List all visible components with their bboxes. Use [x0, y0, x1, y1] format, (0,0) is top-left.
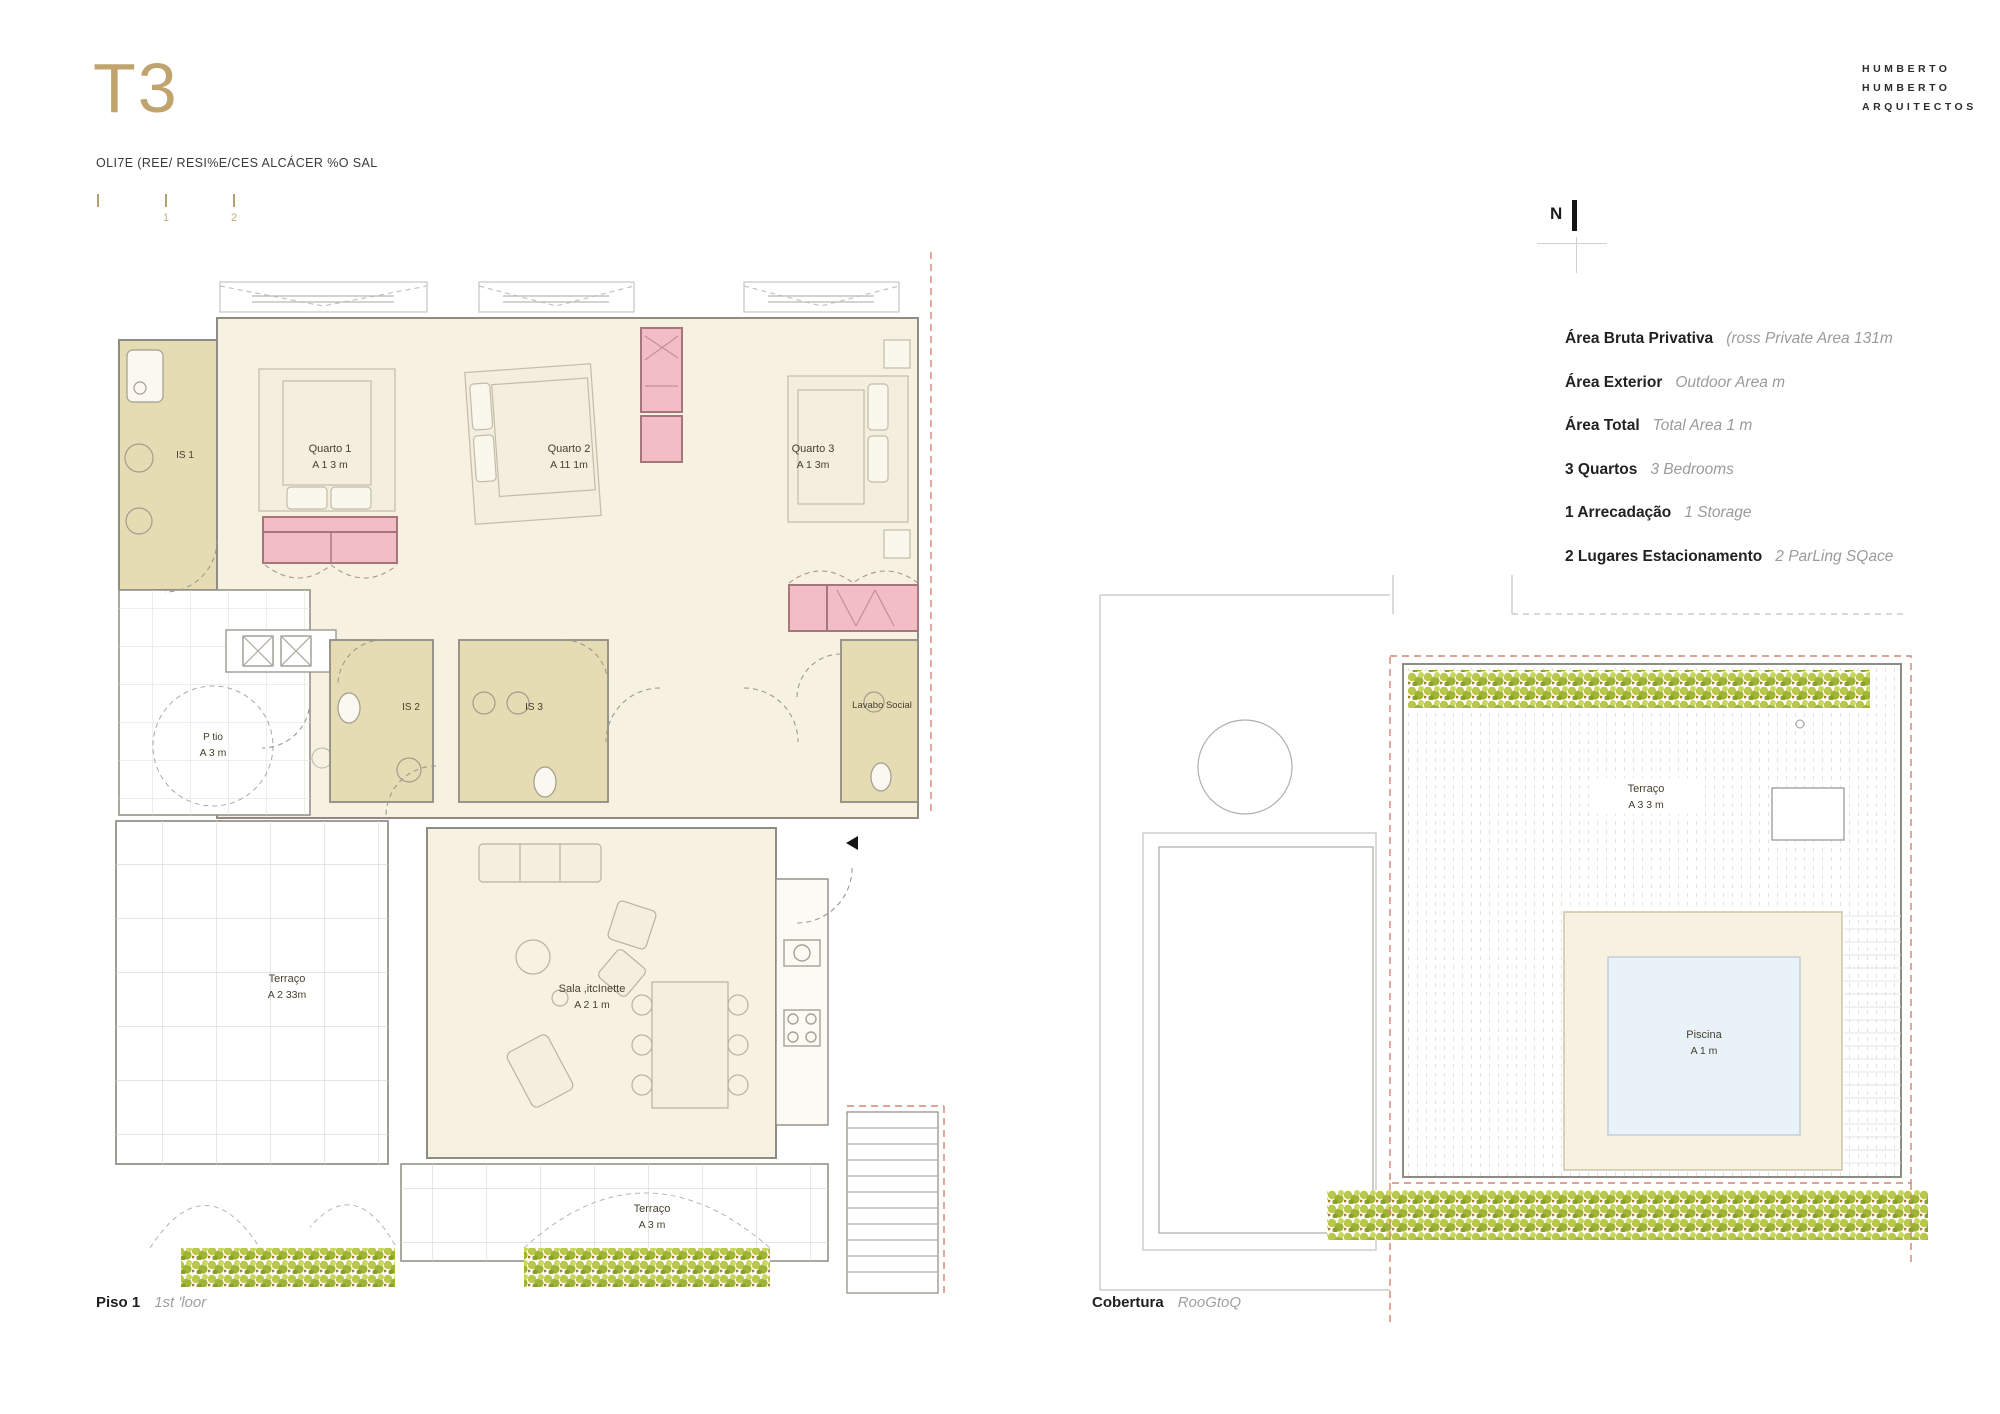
hedge-strip: [524, 1248, 770, 1287]
info-label: 2 Lugares Estacionamento: [1565, 548, 1762, 565]
room-label-is3: IS 3: [525, 702, 543, 713]
terrace-left: [116, 821, 395, 1248]
room-label-quarto1: Quarto 1: [309, 443, 352, 455]
room-area-sala: A 2 1 m: [574, 999, 610, 1011]
cobertura-caption-sub: RooGtoQ: [1178, 1294, 1241, 1311]
pool-deck: [1564, 912, 1901, 1170]
info-label: 1 Arrecadação: [1565, 504, 1671, 521]
info-label: Área Exterior: [1565, 374, 1662, 391]
page-title: T3: [93, 48, 179, 128]
floor1-caption-sub: 1st 'loor: [154, 1294, 206, 1311]
room-label-piscina: Piscina: [1686, 1029, 1722, 1041]
room-label-quarto3: Quarto 3: [792, 443, 835, 455]
scale-label: 2: [231, 212, 237, 224]
area-info-list: Área Bruta Privativa(ross Private Area 1…: [1565, 330, 1995, 591]
terrace-bottom: [401, 1164, 828, 1261]
stairs: [847, 1112, 938, 1293]
room-label-terraco-bottom: Terraço: [634, 1203, 671, 1215]
deck-steps: [1844, 912, 1901, 1170]
north-label: N: [1550, 204, 1562, 224]
north-crosshair: [1576, 237, 1577, 273]
room-label-patio: P tio: [203, 732, 223, 743]
info-value: 1 Storage: [1684, 504, 1751, 521]
info-value: 2 ParLing SQace: [1775, 548, 1893, 565]
room-area-quarto2: A 11 1m: [550, 459, 588, 471]
room-label-sala: Sala ,itcInette: [559, 983, 626, 995]
entrance-arrow-icon: [846, 836, 858, 850]
room-area-terraco-left: A 2 33m: [268, 989, 307, 1001]
patio-area: [119, 590, 332, 815]
room-label-quarto2: Quarto 2: [548, 443, 591, 455]
info-row: Área ExteriorOutdoor Area m: [1565, 374, 1995, 392]
hedge-strip: [1408, 670, 1870, 708]
room-area-quarto3: A 1 3m: [797, 459, 830, 471]
info-row: 1 Arrecadação1 Storage: [1565, 504, 1995, 522]
room-label-lavabo: Lavabo Social: [852, 700, 912, 711]
info-label: Área Bruta Privativa: [1565, 330, 1713, 347]
room-area-patio: A 3 m: [200, 747, 227, 759]
room-label-is2: IS 2: [402, 702, 420, 713]
info-row: 2 Lugares Estacionamento2 ParLing SQace: [1565, 548, 1995, 566]
info-value: 3 Bedrooms: [1650, 461, 1734, 478]
scale-tick: [165, 194, 167, 207]
logo-line: ARQUITECTOS: [1862, 98, 1977, 117]
scale-tick: [97, 194, 99, 207]
hedge-strip: [1327, 1190, 1928, 1240]
logo-line: HUMBERTO: [1862, 79, 1977, 98]
cobertura-caption: CoberturaRooGtoQ: [1092, 1294, 1241, 1311]
wardrobe-quarto2: [641, 328, 682, 462]
scale-bar: 1 2: [96, 194, 276, 230]
hedge-strip: [181, 1248, 395, 1287]
info-value: Total Area 1 m: [1653, 417, 1753, 434]
room-area-terraco-bottom: A 3 m: [639, 1219, 666, 1231]
floor1-caption-main: Piso 1: [96, 1294, 140, 1311]
room-is3: [459, 640, 608, 802]
info-label: Área Total: [1565, 417, 1640, 434]
scale-label: 1: [163, 212, 169, 224]
cobertura-plan: Terraço A 3 3 m Piscina A 1 m: [1080, 570, 1950, 1330]
laundry-closet: [226, 630, 336, 672]
room-label-is1: IS 1: [176, 450, 194, 461]
info-label: 3 Quartos: [1565, 461, 1637, 478]
cobertura-caption-main: Cobertura: [1092, 1294, 1164, 1311]
floor1-caption: Piso 11st 'loor: [96, 1294, 206, 1311]
architect-logo: HUMBERTO HUMBERTO ARQUITECTOS: [1862, 60, 1977, 117]
room-label-roof-terraco: Terraço: [1628, 783, 1665, 795]
roof-skylight: [1772, 788, 1844, 840]
info-value: (ross Private Area 131m: [1726, 330, 1893, 347]
room-area-piscina: A 1 m: [1691, 1045, 1718, 1057]
info-row: Área TotalTotal Area 1 m: [1565, 417, 1995, 435]
kitchen-counter: [776, 879, 828, 1125]
project-subtitle: OLI7E (REE/ RESI%E/CES ALCÁCER %O SAL: [96, 156, 378, 170]
room-area-roof-terraco: A 3 3 m: [1628, 799, 1664, 811]
north-crosshair: [1537, 243, 1607, 244]
floor1-plan: IS 1 Quarto 1 A 1 3 m Quarto 2 A 11 1m Q…: [90, 250, 950, 1310]
bed-quarto1: [259, 369, 395, 511]
north-arrow-icon: [1572, 200, 1577, 231]
info-value: Outdoor Area m: [1675, 374, 1785, 391]
room-area-quarto1: A 1 3 m: [312, 459, 348, 471]
scale-tick: [233, 194, 235, 207]
window-awnings: [220, 282, 899, 312]
logo-line: HUMBERTO: [1862, 60, 1977, 79]
info-row: Área Bruta Privativa(ross Private Area 1…: [1565, 330, 1995, 348]
room-label-terraco-left: Terraço: [269, 973, 306, 985]
info-row: 3 Quartos3 Bedrooms: [1565, 461, 1995, 479]
